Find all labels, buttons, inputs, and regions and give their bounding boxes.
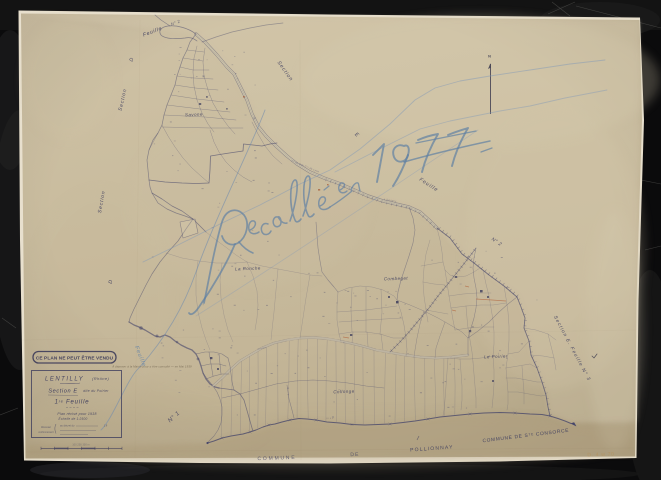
svg-text:D. 4 w 70: D. 4 w 70 xyxy=(587,452,615,459)
svg-text:N: N xyxy=(488,55,491,59)
svg-text:LENTILLY: LENTILLY xyxy=(45,377,84,383)
svg-text:Échelle de 1:2500: Échelle de 1:2500 xyxy=(59,416,88,421)
svg-text:(Rhône): (Rhône) xyxy=(92,376,110,381)
svg-text:au décret du: au décret du xyxy=(60,425,75,428)
svg-text:conformément: conformément xyxy=(38,431,54,434)
svg-text:100 200 300 m: 100 200 300 m xyxy=(72,444,89,447)
svg-text:Plan révisé pour 1938: Plan révisé pour 1938 xyxy=(57,412,96,416)
svg-text:Collonge: Collonge xyxy=(333,389,355,395)
svg-text:Combeget: Combeget xyxy=(384,276,409,282)
svg-text:CE PLAN NE PEUT ÊTRE VENDU: CE PLAN NE PEUT ÊTRE VENDU xyxy=(36,354,114,361)
svg-text:DE: DE xyxy=(350,452,360,458)
svg-text:Section E: Section E xyxy=(48,389,77,395)
svg-text:Le Poirier: Le Poirier xyxy=(484,354,508,360)
svg-text:À déposer à la Mairie pour y ê: À déposer à la Mairie pour y être consul… xyxy=(111,365,192,369)
svg-text:Dressé: Dressé xyxy=(41,425,51,429)
svg-text:La Ronche: La Ronche xyxy=(235,266,261,272)
svg-text:Vᵒ n 4: Vᵒ n 4 xyxy=(326,417,334,420)
svg-text:19: 19 xyxy=(104,425,108,428)
svg-text:Savone: Savone xyxy=(185,112,203,118)
svg-text:dite du Poirier: dite du Poirier xyxy=(83,389,109,393)
